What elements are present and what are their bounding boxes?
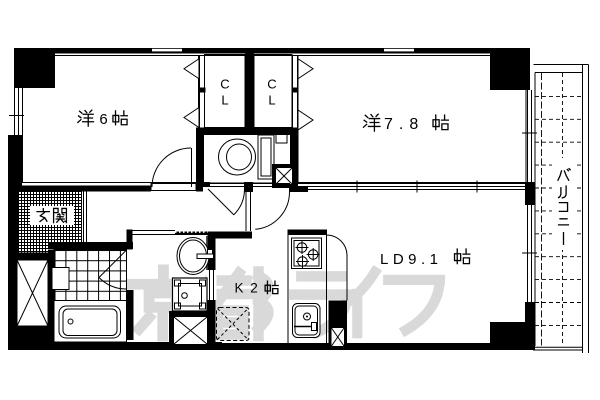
svg-text:C: C: [220, 77, 229, 92]
svg-text:7.8: 7.8: [384, 116, 424, 133]
svg-text:C: C: [267, 77, 276, 92]
svg-text:L: L: [268, 93, 275, 108]
svg-text:LD9.1: LD9.1: [380, 251, 443, 268]
svg-text:6: 6: [99, 111, 107, 128]
svg-text:L: L: [221, 93, 228, 108]
svg-text:K: K: [234, 281, 243, 296]
svg-text:2: 2: [250, 281, 258, 296]
